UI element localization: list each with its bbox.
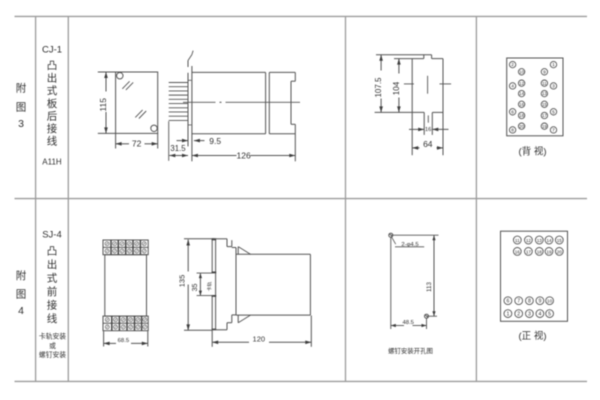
svg-text:14: 14 — [519, 91, 524, 96]
svg-text:12: 12 — [519, 81, 524, 86]
svg-text:13: 13 — [542, 91, 547, 96]
svg-text:4: 4 — [538, 312, 541, 318]
svg-text:螺钉安装: 螺钉安装 — [39, 350, 66, 359]
svg-text:凸: 凸 — [47, 60, 58, 72]
svg-text:SJ-4: SJ-4 — [42, 230, 62, 241]
svg-text:64: 64 — [423, 139, 433, 149]
svg-text:72: 72 — [132, 139, 142, 149]
svg-text:(背 视): (背 视) — [519, 146, 547, 158]
svg-text:12: 12 — [526, 238, 532, 243]
svg-text:16: 16 — [519, 102, 524, 107]
svg-text:18: 18 — [537, 249, 543, 254]
svg-text:4: 4 — [511, 84, 514, 90]
svg-text:13: 13 — [537, 238, 543, 243]
svg-text:20: 20 — [557, 249, 563, 254]
svg-text:后: 后 — [47, 110, 58, 122]
svg-text:1: 1 — [552, 62, 555, 68]
svg-text:出: 出 — [47, 258, 58, 271]
svg-text:19: 19 — [542, 124, 547, 129]
svg-text:35: 35 — [192, 284, 199, 292]
svg-text:2-φ4.5: 2-φ4.5 — [401, 242, 419, 248]
svg-text:式: 式 — [47, 272, 58, 285]
svg-text:11: 11 — [515, 238, 520, 243]
svg-text:线: 线 — [47, 135, 58, 148]
svg-text:8: 8 — [511, 128, 514, 134]
svg-text:3: 3 — [528, 312, 531, 318]
svg-text:120: 120 — [253, 334, 266, 343]
svg-text:17: 17 — [542, 113, 547, 118]
svg-text:接: 接 — [47, 299, 58, 312]
svg-text:5: 5 — [552, 109, 555, 115]
svg-text:14: 14 — [546, 238, 552, 243]
svg-text:113: 113 — [426, 282, 433, 292]
svg-text:18: 18 — [519, 113, 524, 118]
svg-text:前: 前 — [47, 285, 58, 298]
svg-text:10: 10 — [547, 299, 553, 304]
svg-text:107.5: 107.5 — [374, 77, 383, 98]
svg-text:图: 图 — [16, 102, 27, 114]
svg-text:9.5: 9.5 — [209, 136, 221, 146]
svg-text:7: 7 — [552, 128, 555, 134]
svg-text:附: 附 — [16, 82, 27, 95]
svg-text:(正 视): (正 视) — [519, 330, 547, 342]
svg-text:2: 2 — [511, 62, 514, 68]
svg-text:135: 135 — [178, 275, 187, 288]
svg-text:48.5: 48.5 — [402, 320, 414, 326]
svg-text:6: 6 — [506, 299, 509, 305]
svg-text:9: 9 — [538, 299, 541, 305]
svg-text:3: 3 — [552, 84, 555, 90]
svg-text:16: 16 — [515, 249, 521, 254]
svg-text:11: 11 — [542, 81, 547, 86]
svg-text:19: 19 — [546, 249, 552, 254]
svg-text:68.5: 68.5 — [118, 338, 130, 344]
svg-text:7: 7 — [517, 299, 520, 305]
svg-text:式: 式 — [47, 84, 58, 97]
svg-text:线: 线 — [47, 312, 58, 325]
svg-text:6: 6 — [511, 109, 514, 115]
svg-text:卡轨: 卡轨 — [206, 282, 213, 292]
svg-text:出: 出 — [47, 72, 58, 85]
svg-text:20: 20 — [519, 124, 524, 129]
svg-text:16: 16 — [425, 127, 432, 133]
svg-text:A11H: A11H — [42, 158, 62, 167]
svg-text:17: 17 — [526, 249, 532, 254]
svg-text:1: 1 — [506, 312, 509, 318]
svg-text:图: 图 — [16, 289, 27, 301]
svg-text:126: 126 — [237, 150, 251, 160]
svg-text:2: 2 — [517, 312, 520, 318]
svg-text:31.5: 31.5 — [170, 144, 186, 153]
svg-text:9: 9 — [543, 69, 546, 75]
svg-text:8: 8 — [528, 299, 531, 305]
svg-text:螺钉安装开孔图: 螺钉安装开孔图 — [388, 346, 433, 355]
svg-text:凸: 凸 — [47, 246, 58, 258]
svg-text:CJ-1: CJ-1 — [42, 45, 62, 56]
svg-text:4: 4 — [18, 305, 24, 317]
svg-text:15: 15 — [542, 102, 547, 107]
svg-text:10: 10 — [519, 69, 524, 74]
svg-text:附: 附 — [16, 269, 27, 282]
svg-text:卡轨安装: 卡轨安装 — [39, 332, 66, 341]
svg-text:104: 104 — [392, 81, 401, 95]
svg-text:15: 15 — [557, 238, 563, 243]
svg-text:或: 或 — [49, 341, 56, 350]
svg-text:115: 115 — [98, 98, 108, 112]
svg-text:板: 板 — [47, 97, 58, 110]
svg-text:3: 3 — [18, 118, 24, 130]
svg-text:5: 5 — [548, 312, 551, 318]
svg-text:接: 接 — [47, 122, 58, 135]
